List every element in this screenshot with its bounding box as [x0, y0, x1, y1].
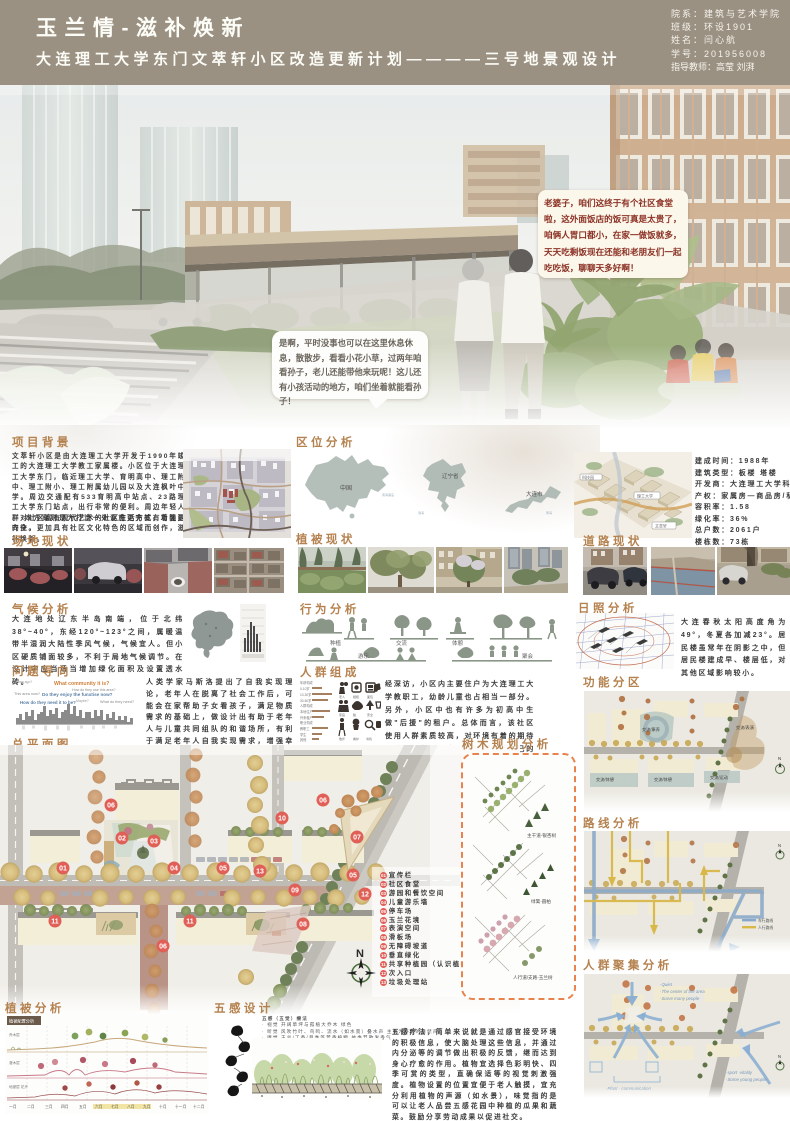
svg-text:家庭: 家庭 [339, 712, 345, 717]
svg-text:本地住户: 本地住户 [300, 709, 313, 714]
svg-text:交流/康养: 交流/康养 [642, 726, 661, 733]
svg-text:06: 06 [319, 798, 327, 805]
svg-text:科技园: 科技园 [582, 474, 594, 480]
svg-text:01: 01 [59, 866, 67, 873]
svg-text:安全: 安全 [367, 712, 373, 717]
svg-text:渤海: 渤海 [418, 510, 424, 515]
svg-text:N: N [778, 1054, 781, 1059]
svg-text:30-60岁: 30-60岁 [300, 698, 311, 703]
svg-text:Then ago?: Then ago? [16, 680, 32, 684]
svg-text:年龄构成: 年龄构成 [300, 680, 314, 685]
svg-text:种植: 种植 [330, 639, 342, 647]
svg-text:绿篱-圆柏: 绿篱-圆柏 [531, 898, 551, 905]
svg-text:五月: 五月 [79, 1104, 87, 1109]
svg-text:0-10岁: 0-10岁 [300, 686, 310, 691]
svg-text:十二月: 十二月 [193, 1104, 205, 1109]
svg-text:05: 05 [349, 873, 357, 880]
svg-text:寻找: 寻找 [366, 736, 372, 741]
svg-text:05: 05 [219, 866, 227, 873]
svg-text:十一月: 十一月 [175, 1104, 187, 1109]
svg-text:体憩: 体憩 [452, 639, 464, 647]
svg-text:02: 02 [118, 836, 126, 843]
svg-text:地被层 花卉: 地被层 花卉 [9, 1084, 28, 1089]
svg-text:一月: 一月 [9, 1104, 17, 1109]
svg-text:看护: 看护 [353, 736, 359, 741]
svg-text:学生: 学生 [300, 732, 307, 737]
svg-text:理工大学: 理工大学 [637, 493, 653, 499]
svg-text:交流: 交流 [396, 639, 408, 647]
svg-text:交流/表演: 交流/表演 [736, 724, 754, 731]
svg-text:·The center of the area: ·The center of the area [660, 989, 705, 994]
svg-text:中国: 中国 [340, 484, 352, 492]
svg-text:Do they enjoy the funxtise now: Do they enjoy the funxtise now? [42, 692, 113, 697]
svg-text:教职工: 教职工 [300, 726, 310, 731]
svg-text:二月: 二月 [27, 1104, 35, 1109]
svg-text:06: 06 [107, 803, 115, 810]
svg-text:·Some young people: ·Some young people [726, 1077, 767, 1082]
svg-text:面包: 面包 [367, 694, 373, 699]
svg-text:九月: 九月 [143, 1104, 151, 1109]
svg-text:This area now?: This area now? [14, 692, 40, 696]
svg-text:03: 03 [150, 839, 158, 846]
svg-text:13: 13 [256, 869, 264, 876]
svg-text:脑: 脑 [353, 712, 356, 717]
svg-text:人行路线: 人行路线 [758, 925, 773, 930]
svg-text:交流/运动: 交流/运动 [710, 774, 728, 781]
svg-text:文萃轩: 文萃轩 [655, 523, 667, 529]
svg-text:What community it is?: What community it is? [54, 681, 109, 687]
svg-text:11: 11 [186, 919, 194, 926]
svg-text:11: 11 [51, 919, 59, 926]
svg-text:N: N [778, 843, 781, 848]
svg-text:八月: 八月 [127, 1104, 135, 1109]
svg-text:外来租户: 外来租户 [300, 715, 313, 720]
svg-text:聚会: 聚会 [522, 652, 534, 660]
svg-text:十月: 十月 [159, 1104, 167, 1109]
svg-text:N: N [356, 948, 364, 960]
svg-text:主干道-银杏树: 主干道-银杏树 [527, 832, 556, 839]
svg-text:老人: 老人 [339, 694, 345, 699]
svg-text:交流/休憩: 交流/休憩 [596, 776, 615, 783]
svg-text:06: 06 [159, 944, 167, 951]
svg-text:大连市: 大连市 [526, 490, 543, 498]
svg-text:其他: 其他 [300, 737, 307, 742]
svg-text:游乐: 游乐 [358, 652, 370, 660]
svg-text:三月: 三月 [45, 1104, 53, 1109]
svg-text:四月: 四月 [61, 1104, 69, 1109]
svg-text:六月: 六月 [95, 1104, 103, 1109]
svg-text:七月: 七月 [111, 1104, 119, 1109]
svg-text:What do they need?: What do they need? [100, 700, 134, 704]
svg-text:09: 09 [291, 888, 299, 895]
svg-text:黄海: 黄海 [546, 510, 552, 515]
svg-text:灌木层: 灌木层 [9, 1060, 20, 1065]
svg-text:植被配置分析: 植被配置分析 [9, 1018, 34, 1025]
svg-text:人行道/支路-玉兰树: 人行道/支路-玉兰树 [513, 974, 553, 981]
svg-text:·Surve many people: ·Surve many people [660, 996, 700, 1001]
svg-text:Maybe?: Maybe? [76, 699, 89, 703]
svg-text:散步: 散步 [339, 736, 345, 741]
svg-text:车行路线: 车行路线 [758, 918, 773, 923]
svg-text:04: 04 [170, 866, 178, 873]
svg-text:08: 08 [299, 922, 307, 929]
svg-text:交流/休憩: 交流/休憩 [654, 776, 673, 783]
svg-text:职业构成: 职业构成 [300, 720, 314, 725]
svg-text:·Quiet: ·Quiet [660, 982, 673, 987]
svg-text:10-30岁: 10-30岁 [300, 692, 311, 697]
svg-text:07: 07 [353, 835, 361, 842]
svg-text:乔木层: 乔木层 [9, 1032, 20, 1037]
svg-text:12: 12 [361, 892, 369, 899]
svg-text:辽宁省: 辽宁省 [442, 472, 459, 480]
svg-text:N: N [778, 756, 781, 761]
svg-text:10: 10 [278, 816, 286, 823]
svg-text:南海诸岛: 南海诸岛 [382, 492, 394, 497]
svg-text:人群构成: 人群构成 [300, 703, 314, 708]
svg-text:相框: 相框 [353, 694, 359, 699]
svg-text:·sport ·vitality: ·sport ·vitality [726, 1070, 753, 1075]
